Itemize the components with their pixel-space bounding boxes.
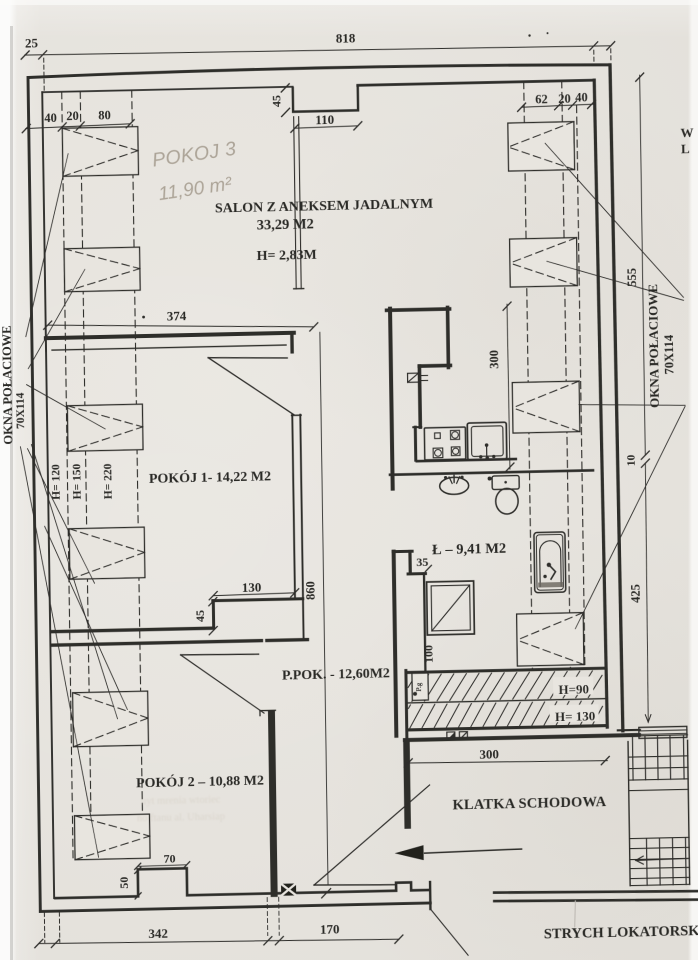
svg-text:70: 70 — [164, 852, 176, 866]
svg-text:20: 20 — [66, 109, 79, 123]
svg-text:10: 10 — [626, 454, 638, 466]
svg-text:20: 20 — [558, 92, 571, 106]
svg-text:W: W — [680, 125, 693, 140]
svg-text:170: 170 — [320, 922, 340, 937]
svg-text:425: 425 — [629, 584, 643, 603]
svg-text:KLATKA SCHODOWA: KLATKA SCHODOWA — [452, 794, 606, 813]
svg-text:40: 40 — [44, 111, 57, 125]
svg-text:80: 80 — [98, 108, 111, 122]
svg-text:Ł – 9,41 M2: Ł – 9,41 M2 — [432, 541, 506, 559]
svg-text:50: 50 — [117, 877, 131, 889]
svg-text:342: 342 — [148, 926, 168, 941]
svg-text:62: 62 — [535, 92, 548, 106]
svg-text:110: 110 — [315, 112, 334, 127]
svg-text:H= 2,83M: H= 2,83M — [257, 248, 317, 264]
svg-text:OKNA POŁACIOWE: OKNA POŁACIOWE — [645, 284, 662, 408]
svg-text:40: 40 — [575, 90, 588, 104]
svg-text:45: 45 — [269, 95, 283, 107]
svg-text:POKÓJ 2 – 10,88 M2: POKÓJ 2 – 10,88 M2 — [136, 772, 264, 792]
svg-text:SALON Z ANEKSEM JADALNYM: SALON Z ANEKSEM JADALNYM — [215, 197, 433, 217]
svg-text:374: 374 — [167, 308, 187, 323]
svg-text:H= 120: H= 120 — [50, 464, 63, 500]
svg-text:70X114: 70X114 — [662, 334, 677, 375]
svg-text:P.g: P.g — [415, 682, 423, 692]
svg-text:300: 300 — [479, 746, 499, 761]
svg-text:860: 860 — [304, 581, 318, 600]
svg-text:45: 45 — [193, 610, 207, 622]
svg-text:H= 150: H= 150 — [71, 463, 84, 499]
svg-text:35: 35 — [416, 555, 428, 569]
svg-text:25: 25 — [25, 35, 39, 50]
svg-text:POKÓJ 1- 14,22 M2: POKÓJ 1- 14,22 M2 — [149, 467, 271, 487]
svg-text:300: 300 — [487, 350, 501, 369]
svg-text:OKNA POŁACIOWE: OKNA POŁACIOWE — [0, 325, 15, 444]
svg-text:H= 130: H= 130 — [555, 708, 595, 724]
svg-text:H=90: H=90 — [558, 681, 589, 697]
svg-text:818: 818 — [336, 30, 356, 45]
svg-text:no ftanu al. Uharsiap: no ftanu al. Uharsiap — [137, 811, 225, 824]
svg-text:P.POK. - 12,60M2: P.POK. - 12,60M2 — [282, 666, 390, 683]
svg-text:H= 220: H= 220 — [102, 463, 115, 499]
svg-text:555: 555 — [625, 268, 639, 287]
svg-text:70X114: 70X114 — [15, 392, 28, 429]
svg-text:L: L — [681, 141, 690, 156]
svg-text:130: 130 — [242, 580, 262, 595]
svg-text:uyt mrenia wtoriec: uyt mrenia wtoriec — [141, 795, 221, 808]
svg-text:33,29 M2: 33,29 M2 — [257, 216, 314, 233]
svg-text:POKOJ 3: POKOJ 3 — [151, 138, 238, 172]
svg-text:STRYCH LOKATORSKI: STRYCH LOKATORSKI — [544, 923, 698, 943]
svg-text:100: 100 — [422, 645, 436, 663]
